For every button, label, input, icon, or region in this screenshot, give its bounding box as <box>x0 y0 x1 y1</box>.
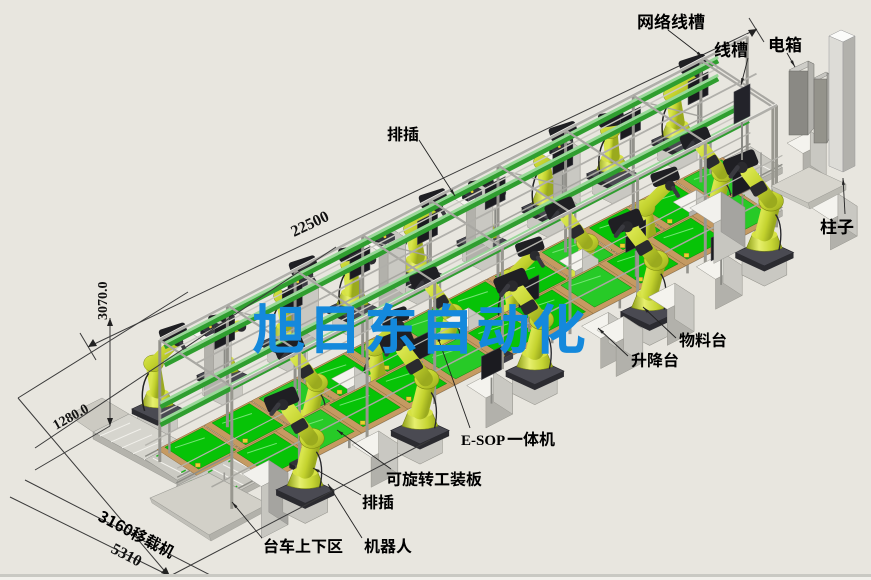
svg-text:3070.0: 3070.0 <box>96 282 111 321</box>
svg-text:E-SOP: E-SOP <box>461 433 505 449</box>
